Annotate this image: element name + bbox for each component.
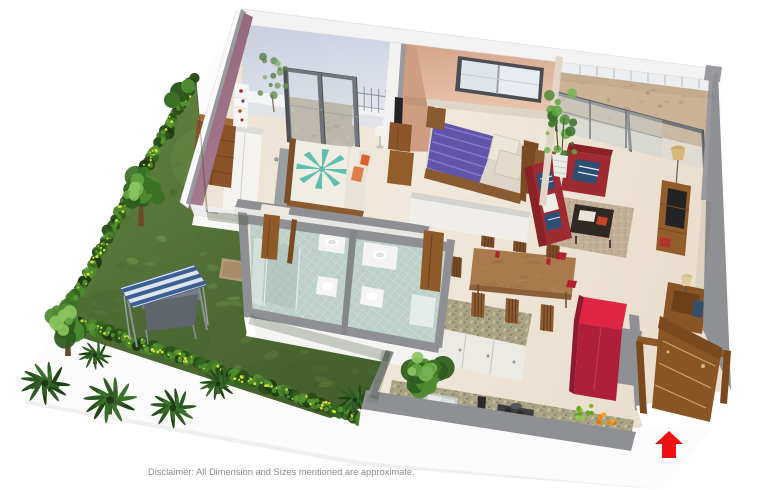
svg-text:Disclaimer: All Dimension and: Disclaimer: All Dimension and Sizes ment… — [148, 467, 415, 477]
